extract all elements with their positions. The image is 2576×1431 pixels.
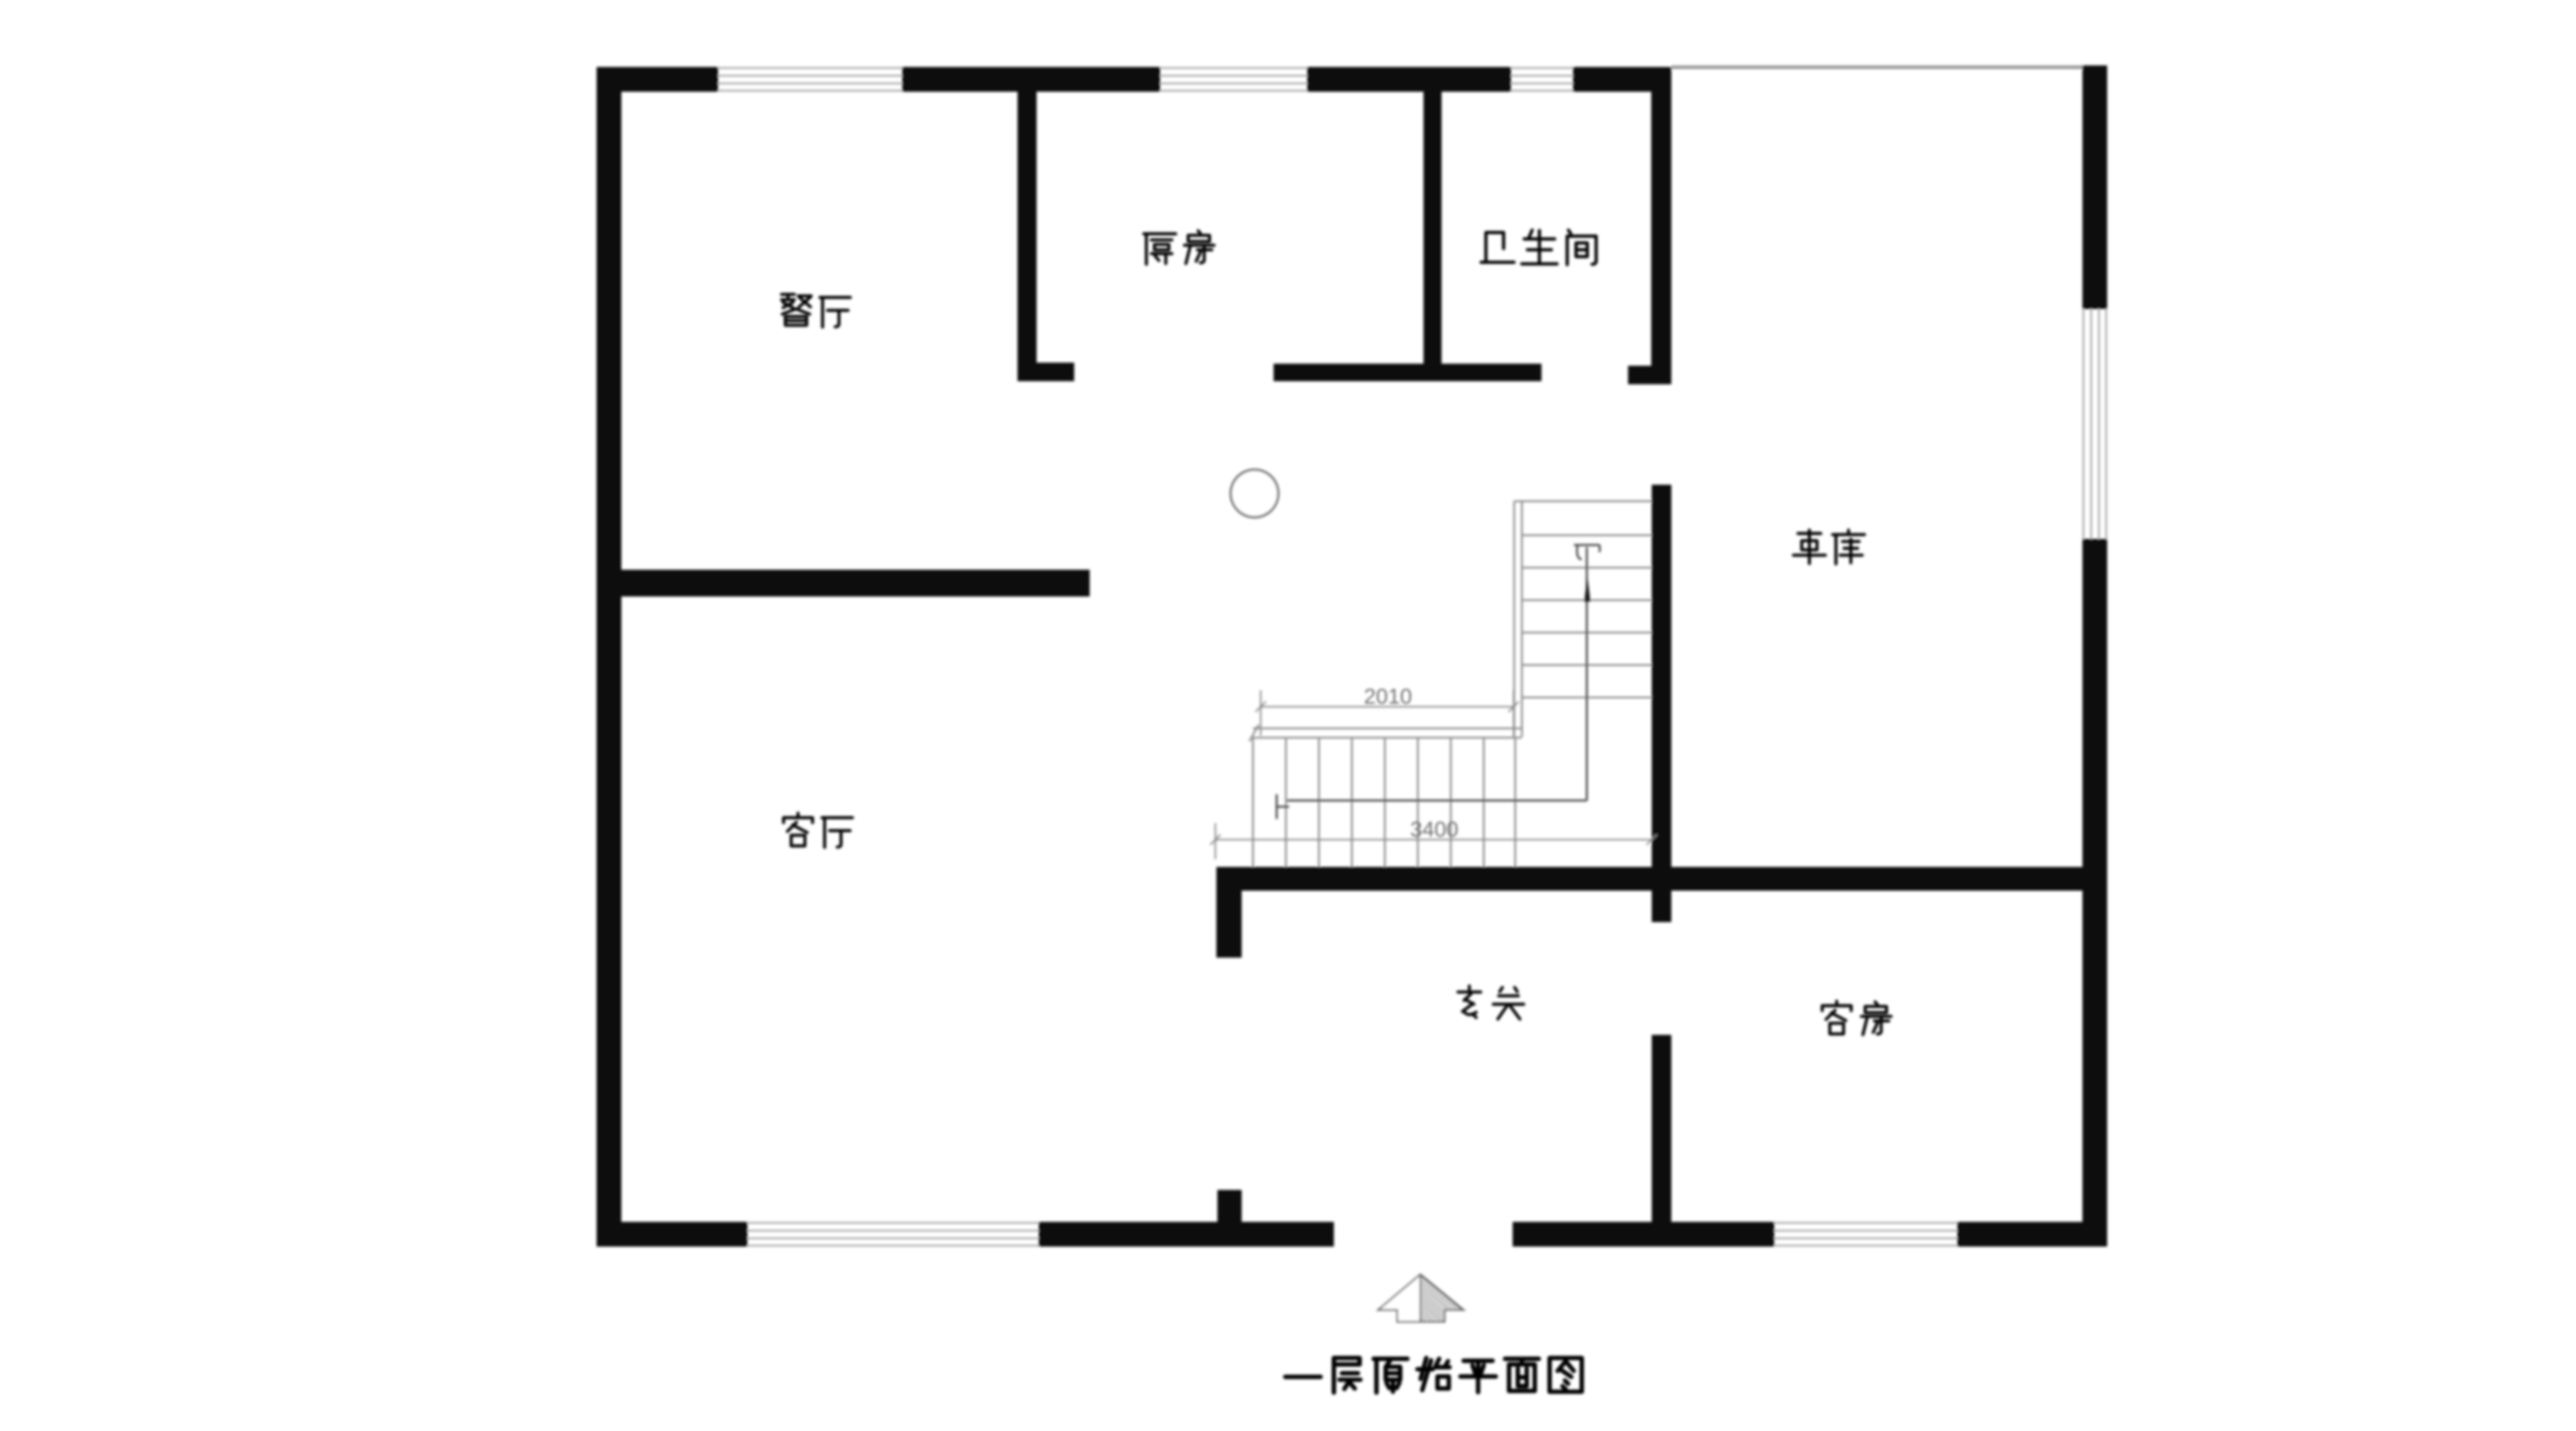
svg-text:2010: 2010 xyxy=(1364,684,1412,708)
svg-text:3400: 3400 xyxy=(1410,817,1458,841)
